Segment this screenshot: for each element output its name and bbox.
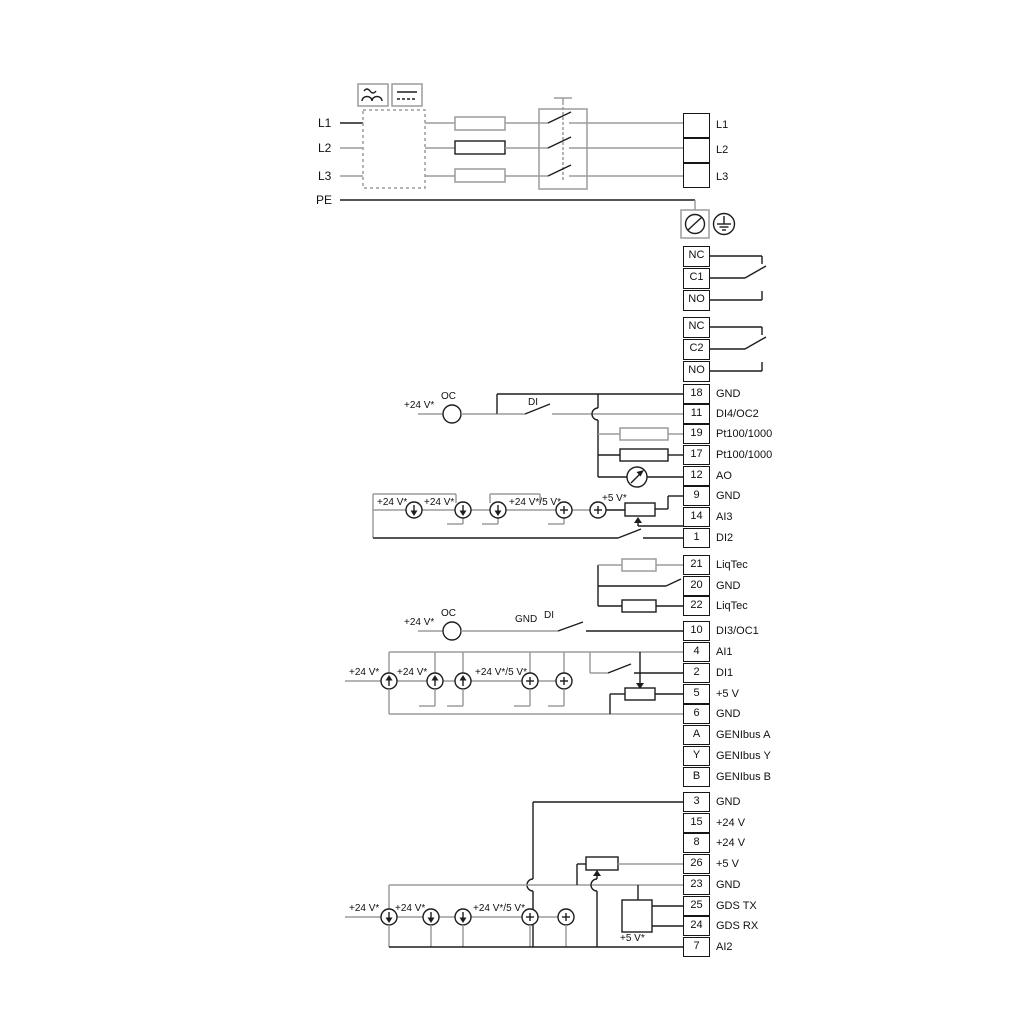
- terminal-8: 8: [683, 833, 710, 853]
- terminal-b-label: GENIbus B: [716, 771, 771, 783]
- potentiometer-ai3: [625, 503, 655, 516]
- terminal-22: 22: [683, 596, 710, 616]
- screw-terminal-icon: [681, 210, 709, 238]
- terminal-24: 24: [683, 916, 710, 936]
- terminal-8-label: +24 V: [716, 837, 745, 849]
- terminal-9: 9: [683, 486, 710, 506]
- open-collector-icon: [443, 405, 461, 423]
- fuse-l1: [455, 117, 505, 130]
- mains-terminal-l2: [683, 138, 710, 163]
- terminal-2: 2: [683, 663, 710, 683]
- current-source-icon: [490, 502, 506, 518]
- current-source-icon: [423, 909, 439, 925]
- terminal-11: 11: [683, 404, 710, 424]
- analog-input2-gds-circuit: [345, 802, 683, 947]
- mains-right-label-l2: L2: [716, 144, 728, 156]
- dc-symbol-icon: [392, 84, 422, 106]
- fuse-l2: [455, 141, 505, 154]
- mains-left-label-l1: L1: [318, 116, 331, 130]
- liqtec-resistor-1: [622, 559, 656, 571]
- relay1-contact: [710, 256, 766, 300]
- annotation-oc: OC: [441, 608, 456, 619]
- terminal-5: 5: [683, 684, 710, 704]
- voltage-source-icon: [558, 909, 574, 925]
- current-source-icon: [455, 909, 471, 925]
- potentiometer-ai1: [625, 688, 655, 700]
- terminal-6: 6: [683, 704, 710, 724]
- wiring-diagram-page: L1 L2 L3 PE L1 L2 L3 NC C1 NO NC C2 NO 1…: [0, 0, 1024, 1024]
- earth-ground-icon: [714, 214, 735, 235]
- terminal-23-label: GND: [716, 879, 740, 891]
- emc-filter-box: [363, 110, 425, 188]
- terminal-10: 10: [683, 621, 710, 641]
- digital-input-oc1-circuit: [418, 622, 683, 640]
- annotation-24v: +24 V*: [397, 667, 427, 678]
- potentiometer-ai2: [586, 857, 618, 870]
- terminal-1-label: DI2: [716, 532, 733, 544]
- relay1-terminal-c1: C1: [683, 268, 710, 289]
- annotation-24v: +24 V*: [395, 903, 425, 914]
- terminal-5-label: +5 V: [716, 688, 739, 700]
- current-source-icon: [427, 673, 443, 689]
- annotation-24v: +24 V*: [349, 667, 379, 678]
- terminal-19-label: Pt100/1000: [716, 428, 772, 440]
- terminal-y: Y: [683, 746, 710, 766]
- mains-right-label-l3: L3: [716, 171, 728, 183]
- annotation-24v: +24 V*: [404, 400, 434, 411]
- pt100-sensor-circuit: [598, 428, 683, 461]
- terminal-26: 26: [683, 854, 710, 874]
- terminal-17: 17: [683, 445, 710, 465]
- fuse-l3: [455, 169, 505, 182]
- terminal-4-label: AI1: [716, 646, 733, 658]
- current-source-icon: [381, 673, 397, 689]
- relay1-terminal-no: NO: [683, 290, 710, 311]
- terminal-20: 20: [683, 576, 710, 596]
- mains-right-label-l1: L1: [716, 119, 728, 131]
- terminal-11-label: DI4/OC2: [716, 408, 759, 420]
- terminal-12-label: AO: [716, 470, 732, 482]
- annotation-24v-5v: +24 V*/5 V*: [473, 903, 525, 914]
- terminal-15-label: +24 V: [716, 817, 745, 829]
- terminal-22-label: LiqTec: [716, 600, 748, 612]
- open-collector-icon: [443, 622, 461, 640]
- annotation-24v: +24 V*: [404, 617, 434, 628]
- terminal-10-label: DI3/OC1: [716, 625, 759, 637]
- terminal-6-label: GND: [716, 708, 740, 720]
- current-source-icon: [406, 502, 422, 518]
- relay2-terminal-no: NO: [683, 361, 710, 382]
- terminal-21: 21: [683, 555, 710, 575]
- annotation-24v: +24 V*: [424, 497, 454, 508]
- voltage-source-icon: [590, 502, 606, 518]
- annotation-24v: +24 V*: [377, 497, 407, 508]
- terminal-3-label: GND: [716, 796, 740, 808]
- mains-section: [340, 84, 735, 238]
- terminal-21-label: LiqTec: [716, 559, 748, 571]
- relay2-contact: [710, 327, 766, 371]
- mains-terminal-l1: [683, 113, 710, 138]
- annotation-gnd: GND: [515, 614, 537, 625]
- annotation-di: DI: [528, 397, 538, 408]
- current-source-icon: [455, 673, 471, 689]
- ac-symbol-icon: [358, 84, 388, 106]
- wiring-diagram-graphics: [0, 0, 1024, 1024]
- mains-terminal-l3: [683, 163, 710, 188]
- terminal-15: 15: [683, 813, 710, 833]
- relay1-terminal-nc: NC: [683, 246, 710, 267]
- annotation-5v: +5 V*: [620, 933, 645, 944]
- liqtec-sensor-circuit: [598, 559, 683, 612]
- relay2-terminal-c2: C2: [683, 339, 710, 360]
- terminal-a: A: [683, 725, 710, 745]
- main-switch: [539, 98, 587, 189]
- terminal-2-label: DI1: [716, 667, 733, 679]
- terminal-9-label: GND: [716, 490, 740, 502]
- terminal-4: 4: [683, 642, 710, 662]
- terminal-20-label: GND: [716, 580, 740, 592]
- current-source-icon: [455, 502, 471, 518]
- terminal-y-label: GENIbus Y: [716, 750, 771, 762]
- mains-left-label-pe: PE: [316, 193, 332, 207]
- terminal-25: 25: [683, 896, 710, 916]
- pt100-resistor-2: [620, 449, 668, 461]
- terminal-7-label: AI2: [716, 941, 733, 953]
- annotation-24v-5v: +24 V*/5 V*: [475, 667, 527, 678]
- pt100-resistor-1: [620, 428, 668, 440]
- liqtec-resistor-2: [622, 600, 656, 612]
- voltage-source-icon: [556, 673, 572, 689]
- annotation-24v: +24 V*: [349, 903, 379, 914]
- terminal-1: 1: [683, 528, 710, 548]
- terminal-19: 19: [683, 424, 710, 444]
- analog-input1-sensor-options: [345, 652, 683, 714]
- terminal-7: 7: [683, 937, 710, 957]
- annotation-oc: OC: [441, 391, 456, 402]
- terminal-26-label: +5 V: [716, 858, 739, 870]
- terminal-25-label: GDS TX: [716, 900, 757, 912]
- annotation-24v-5v: +24 V*/5 V*: [509, 497, 561, 508]
- terminal-3: 3: [683, 792, 710, 812]
- mains-left-label-l2: L2: [318, 141, 331, 155]
- terminal-18: 18: [683, 384, 710, 404]
- relay2-terminal-nc: NC: [683, 317, 710, 338]
- terminal-14-label: AI3: [716, 511, 733, 523]
- terminal-14: 14: [683, 507, 710, 527]
- annotation-di: DI: [544, 610, 554, 621]
- annotation-5v: +5 V*: [602, 493, 627, 504]
- terminal-b: B: [683, 767, 710, 787]
- terminal-17-label: Pt100/1000: [716, 449, 772, 461]
- terminal-24-label: GDS RX: [716, 920, 758, 932]
- terminal-a-label: GENIbus A: [716, 729, 770, 741]
- analog-output-circuit: [598, 467, 683, 487]
- mains-left-label-l3: L3: [318, 169, 331, 183]
- terminal-12: 12: [683, 466, 710, 486]
- gds-sensor-box: [622, 900, 652, 932]
- terminal-18-label: GND: [716, 388, 740, 400]
- terminal-23: 23: [683, 875, 710, 895]
